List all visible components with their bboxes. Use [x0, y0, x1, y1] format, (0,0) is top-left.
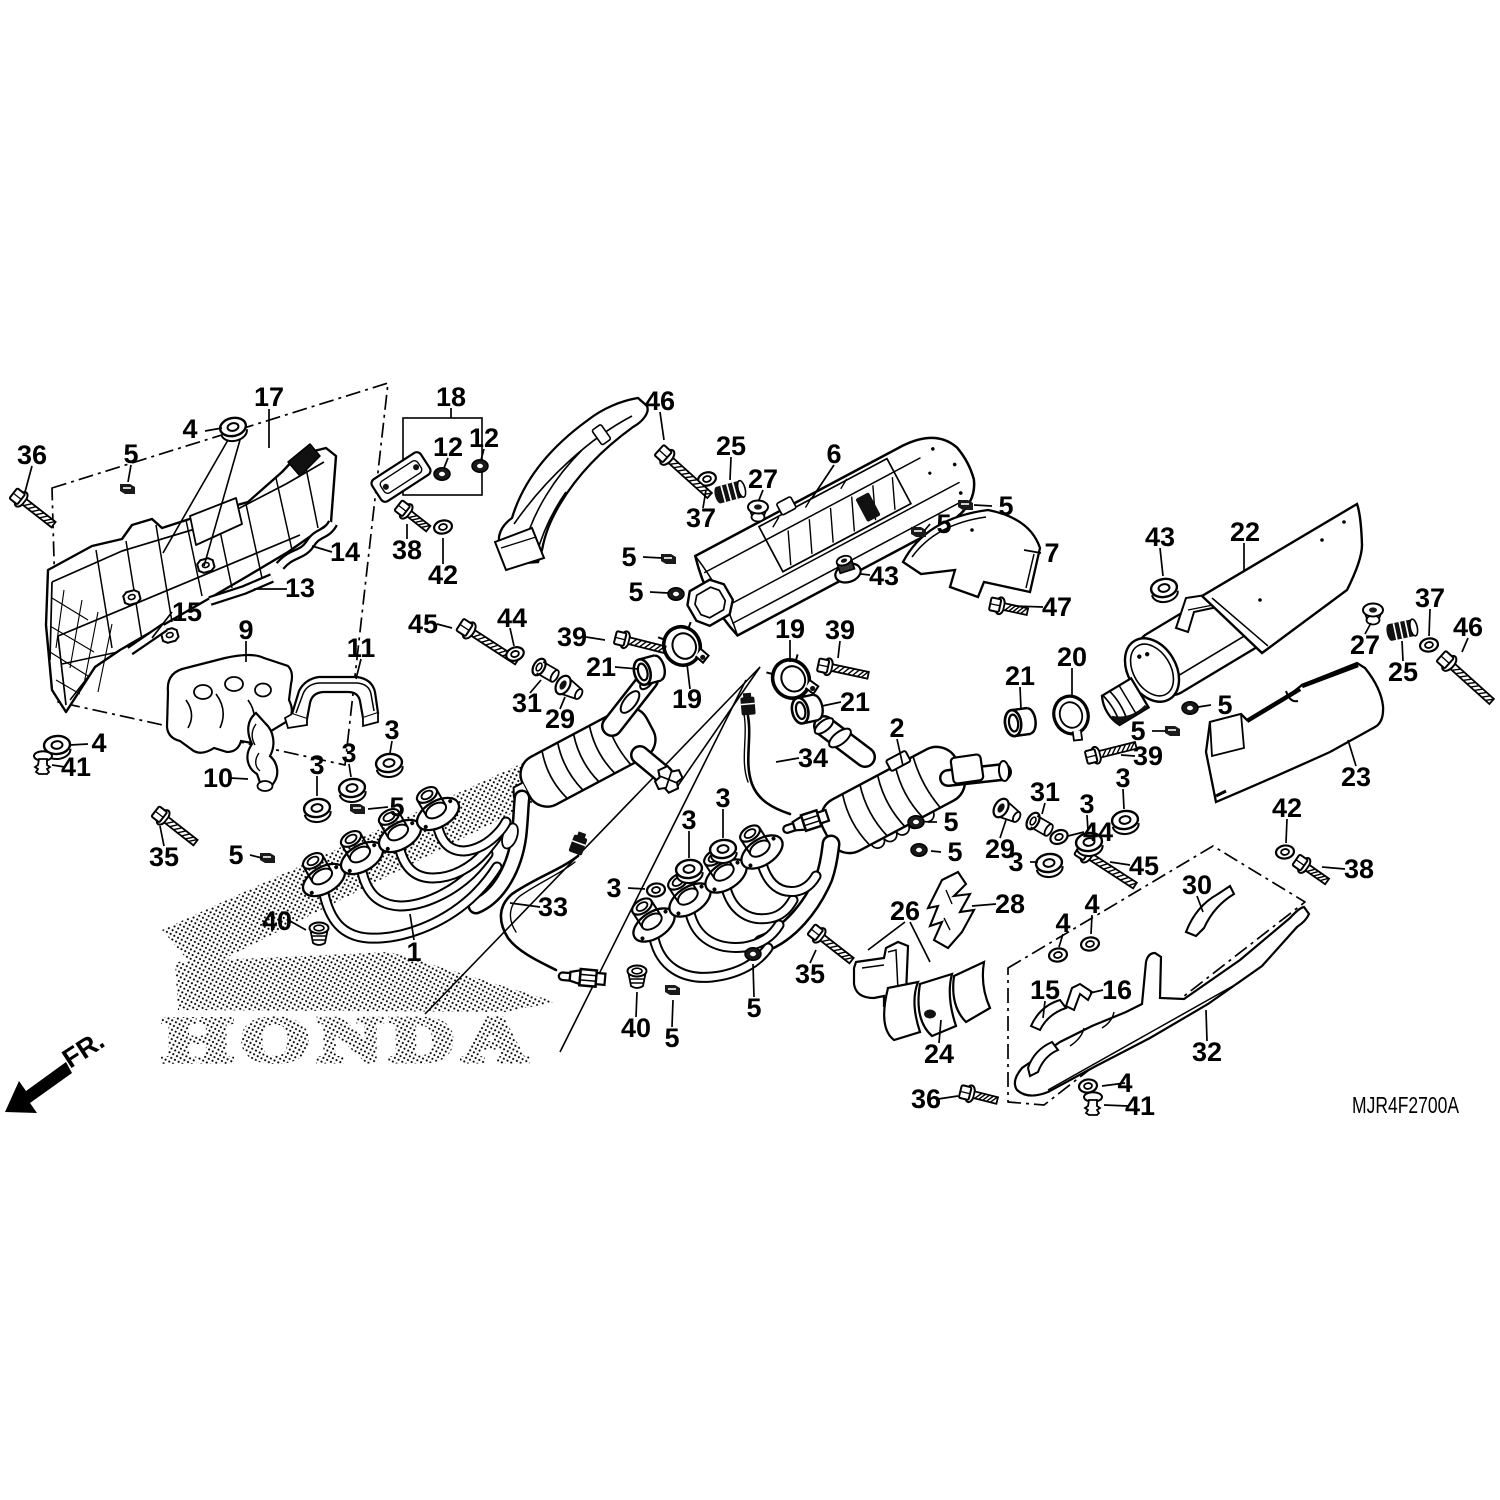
svg-text:3: 3	[1079, 789, 1094, 819]
svg-text:29: 29	[545, 704, 575, 734]
svg-text:27: 27	[1350, 630, 1380, 660]
svg-text:39: 39	[1133, 741, 1163, 771]
svg-text:3: 3	[681, 805, 696, 835]
svg-text:45: 45	[1129, 851, 1159, 881]
svg-text:5: 5	[1217, 690, 1232, 720]
svg-text:40: 40	[262, 906, 292, 936]
svg-text:3: 3	[384, 715, 399, 745]
svg-text:46: 46	[1453, 612, 1483, 642]
svg-text:3: 3	[715, 783, 730, 813]
svg-text:25: 25	[716, 431, 746, 461]
svg-text:4: 4	[1084, 889, 1099, 919]
svg-text:42: 42	[428, 560, 458, 590]
svg-text:36: 36	[17, 440, 47, 470]
svg-text:5: 5	[621, 542, 636, 572]
svg-text:MJR4F2700A: MJR4F2700A	[1352, 1092, 1459, 1118]
svg-text:15: 15	[1030, 975, 1060, 1005]
svg-text:7: 7	[1044, 538, 1059, 568]
svg-text:12: 12	[433, 432, 463, 462]
svg-text:30: 30	[1182, 870, 1212, 900]
svg-text:5: 5	[936, 509, 951, 539]
svg-text:5: 5	[123, 439, 138, 469]
svg-text:12: 12	[469, 423, 499, 453]
svg-text:23: 23	[1341, 762, 1371, 792]
svg-text:5: 5	[746, 993, 761, 1023]
svg-text:24: 24	[924, 1039, 954, 1069]
svg-text:3: 3	[606, 873, 621, 903]
svg-text:10: 10	[203, 763, 233, 793]
svg-text:43: 43	[869, 561, 899, 591]
svg-text:33: 33	[538, 892, 568, 922]
svg-text:31: 31	[1030, 777, 1060, 807]
svg-text:5: 5	[947, 837, 962, 867]
svg-text:16: 16	[1102, 975, 1132, 1005]
svg-text:39: 39	[825, 615, 855, 645]
svg-text:43: 43	[1145, 522, 1175, 552]
svg-text:3: 3	[341, 738, 356, 768]
svg-text:5: 5	[228, 840, 243, 870]
svg-text:36: 36	[911, 1084, 941, 1114]
svg-text:4: 4	[182, 414, 197, 444]
svg-text:20: 20	[1057, 642, 1087, 672]
svg-text:31: 31	[512, 688, 542, 718]
svg-text:39: 39	[557, 622, 587, 652]
svg-text:26: 26	[890, 896, 920, 926]
svg-text:35: 35	[795, 959, 825, 989]
svg-text:6: 6	[826, 439, 841, 469]
svg-text:37: 37	[1415, 583, 1445, 613]
svg-text:40: 40	[621, 1013, 651, 1043]
svg-text:3: 3	[309, 750, 324, 780]
svg-text:15: 15	[172, 597, 202, 627]
svg-text:47: 47	[1042, 592, 1072, 622]
svg-text:19: 19	[672, 684, 702, 714]
svg-text:19: 19	[775, 614, 805, 644]
svg-text:11: 11	[347, 633, 376, 663]
svg-text:28: 28	[995, 889, 1025, 919]
svg-text:41: 41	[61, 752, 91, 782]
svg-text:25: 25	[1388, 657, 1418, 687]
svg-text:21: 21	[586, 652, 616, 682]
svg-text:38: 38	[1344, 854, 1374, 884]
svg-text:17: 17	[254, 382, 284, 412]
svg-text:45: 45	[408, 609, 438, 639]
svg-text:2: 2	[889, 713, 904, 743]
svg-text:5: 5	[998, 491, 1013, 521]
svg-text:4: 4	[1055, 908, 1070, 938]
svg-text:38: 38	[392, 535, 422, 565]
svg-text:21: 21	[1005, 661, 1035, 691]
svg-text:9: 9	[238, 615, 253, 645]
svg-text:35: 35	[149, 842, 179, 872]
svg-text:4: 4	[91, 728, 106, 758]
svg-text:3: 3	[1008, 847, 1023, 877]
svg-text:44: 44	[1083, 817, 1113, 847]
svg-text:46: 46	[645, 386, 675, 416]
svg-text:18: 18	[436, 382, 466, 412]
svg-text:42: 42	[1272, 793, 1302, 823]
svg-text:13: 13	[285, 573, 315, 603]
svg-text:14: 14	[330, 537, 360, 567]
svg-text:21: 21	[840, 687, 870, 717]
svg-text:37: 37	[686, 503, 716, 533]
svg-text:1: 1	[406, 937, 421, 967]
svg-text:32: 32	[1192, 1037, 1222, 1067]
svg-text:HONDA: HONDA	[163, 1004, 535, 1075]
svg-text:22: 22	[1230, 517, 1260, 547]
svg-text:5: 5	[664, 1023, 679, 1053]
svg-text:34: 34	[798, 743, 828, 773]
svg-text:41: 41	[1125, 1091, 1155, 1121]
svg-text:5: 5	[389, 792, 404, 822]
svg-text:5: 5	[943, 807, 958, 837]
svg-text:27: 27	[748, 464, 778, 494]
svg-text:5: 5	[628, 577, 643, 607]
svg-text:44: 44	[497, 603, 527, 633]
svg-text:3: 3	[1115, 763, 1130, 793]
